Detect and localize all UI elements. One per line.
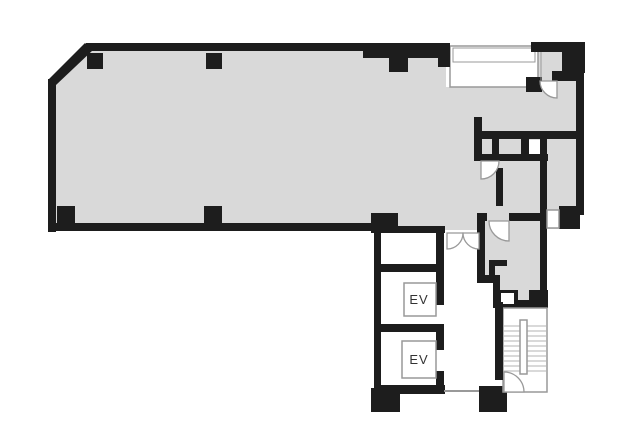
ev-wall-right-seg [436, 371, 444, 394]
staircase [495, 302, 547, 392]
ev-block-wall-left [374, 226, 381, 394]
service-box-black [559, 206, 580, 229]
stair-stringer [520, 320, 527, 374]
column [371, 388, 400, 412]
utility-wall-top-right [509, 213, 547, 221]
floor-plan: EV EV [0, 0, 640, 435]
machine-room-wall-bottom [374, 264, 444, 272]
exterior-wall-bottom [48, 223, 384, 231]
partition-wall-vertical [540, 139, 547, 308]
shaft-box [529, 290, 548, 308]
machine-room [381, 233, 436, 264]
interior-hook-wall-v [489, 260, 495, 283]
elevator-1-label: EV [409, 292, 428, 307]
wall-stub [496, 168, 503, 206]
wall-below-corner [552, 71, 578, 81]
balcony-end-stub [526, 77, 542, 92]
service-box-white [547, 210, 559, 228]
right-service-boxes [547, 206, 580, 229]
ev-wall-right-seg [436, 272, 444, 305]
stall-divider [492, 139, 499, 155]
restroom-wall-top [474, 131, 578, 139]
machine-room-wall-right [436, 226, 444, 272]
balcony [450, 46, 538, 87]
door-arc-double-right [463, 233, 479, 249]
fixture-box [529, 140, 541, 154]
column [57, 206, 75, 224]
wall-end-cap [438, 43, 450, 67]
ev-shaft-divider [374, 324, 444, 332]
floor-plan-page: EV EV [0, 0, 640, 435]
stall-divider [521, 139, 529, 155]
ev-wall-right-seg [436, 330, 444, 350]
exterior-wall-left [48, 79, 56, 232]
corner-column [562, 52, 585, 73]
column [87, 53, 103, 69]
column [389, 43, 408, 72]
column [206, 53, 222, 69]
door-arc-double-left [447, 233, 463, 249]
balcony-outline [450, 46, 538, 87]
ev-block-wall-top [371, 226, 445, 233]
elevator-2-label: EV [409, 352, 428, 367]
restroom-wall-left [474, 117, 482, 158]
stair-wall-left [495, 302, 503, 380]
restroom-wall-bottom [474, 154, 548, 161]
column [204, 206, 222, 224]
